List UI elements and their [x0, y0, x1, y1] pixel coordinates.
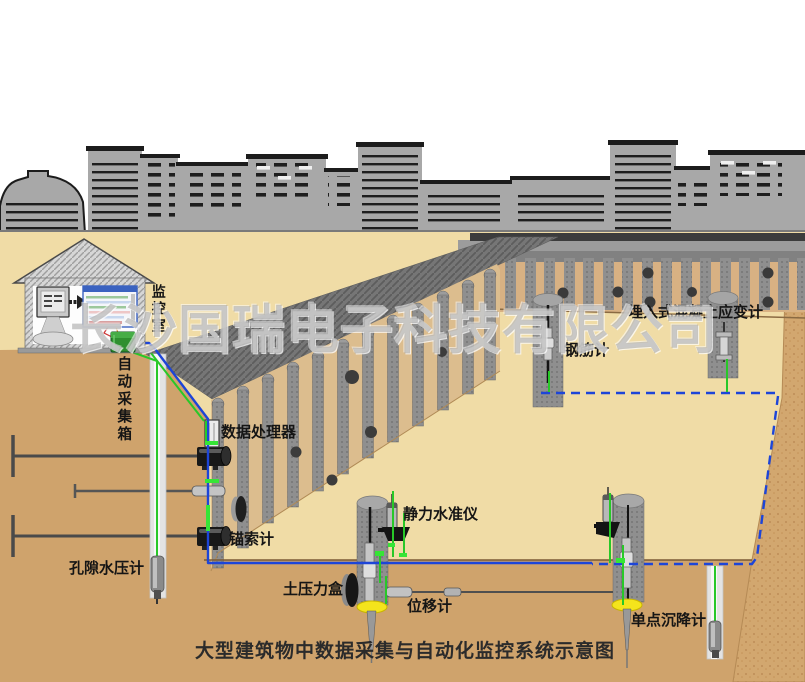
host-computer [33, 287, 73, 346]
strain-gauge-flange-bottom [716, 355, 732, 360]
strain-gauge-sensor [720, 337, 728, 355]
strain-gauge-flange-top [716, 332, 732, 337]
company-watermark: 长沙国瑞电子科技有限公司 [70, 288, 718, 364]
front-soil-band [0, 560, 805, 682]
anchor-plate [236, 496, 247, 522]
diagram-stage: 监控室 自动采集箱 数据处理器 锚索计 孔隙水压计 土压力盒 静力水准仪 位移计… [0, 0, 805, 682]
diagram-caption: 大型建筑物中数据采集与自动化监控系统示意图 [165, 636, 645, 663]
left-soil-block [0, 348, 208, 560]
earth-pressure-cell-device [341, 573, 359, 607]
